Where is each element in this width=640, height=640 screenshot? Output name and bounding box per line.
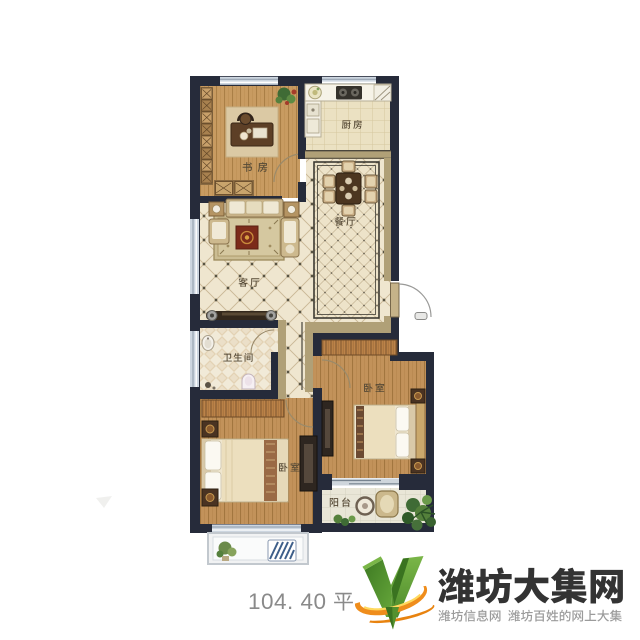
svg-text:104. 40: 104. 40 [248, 589, 327, 614]
